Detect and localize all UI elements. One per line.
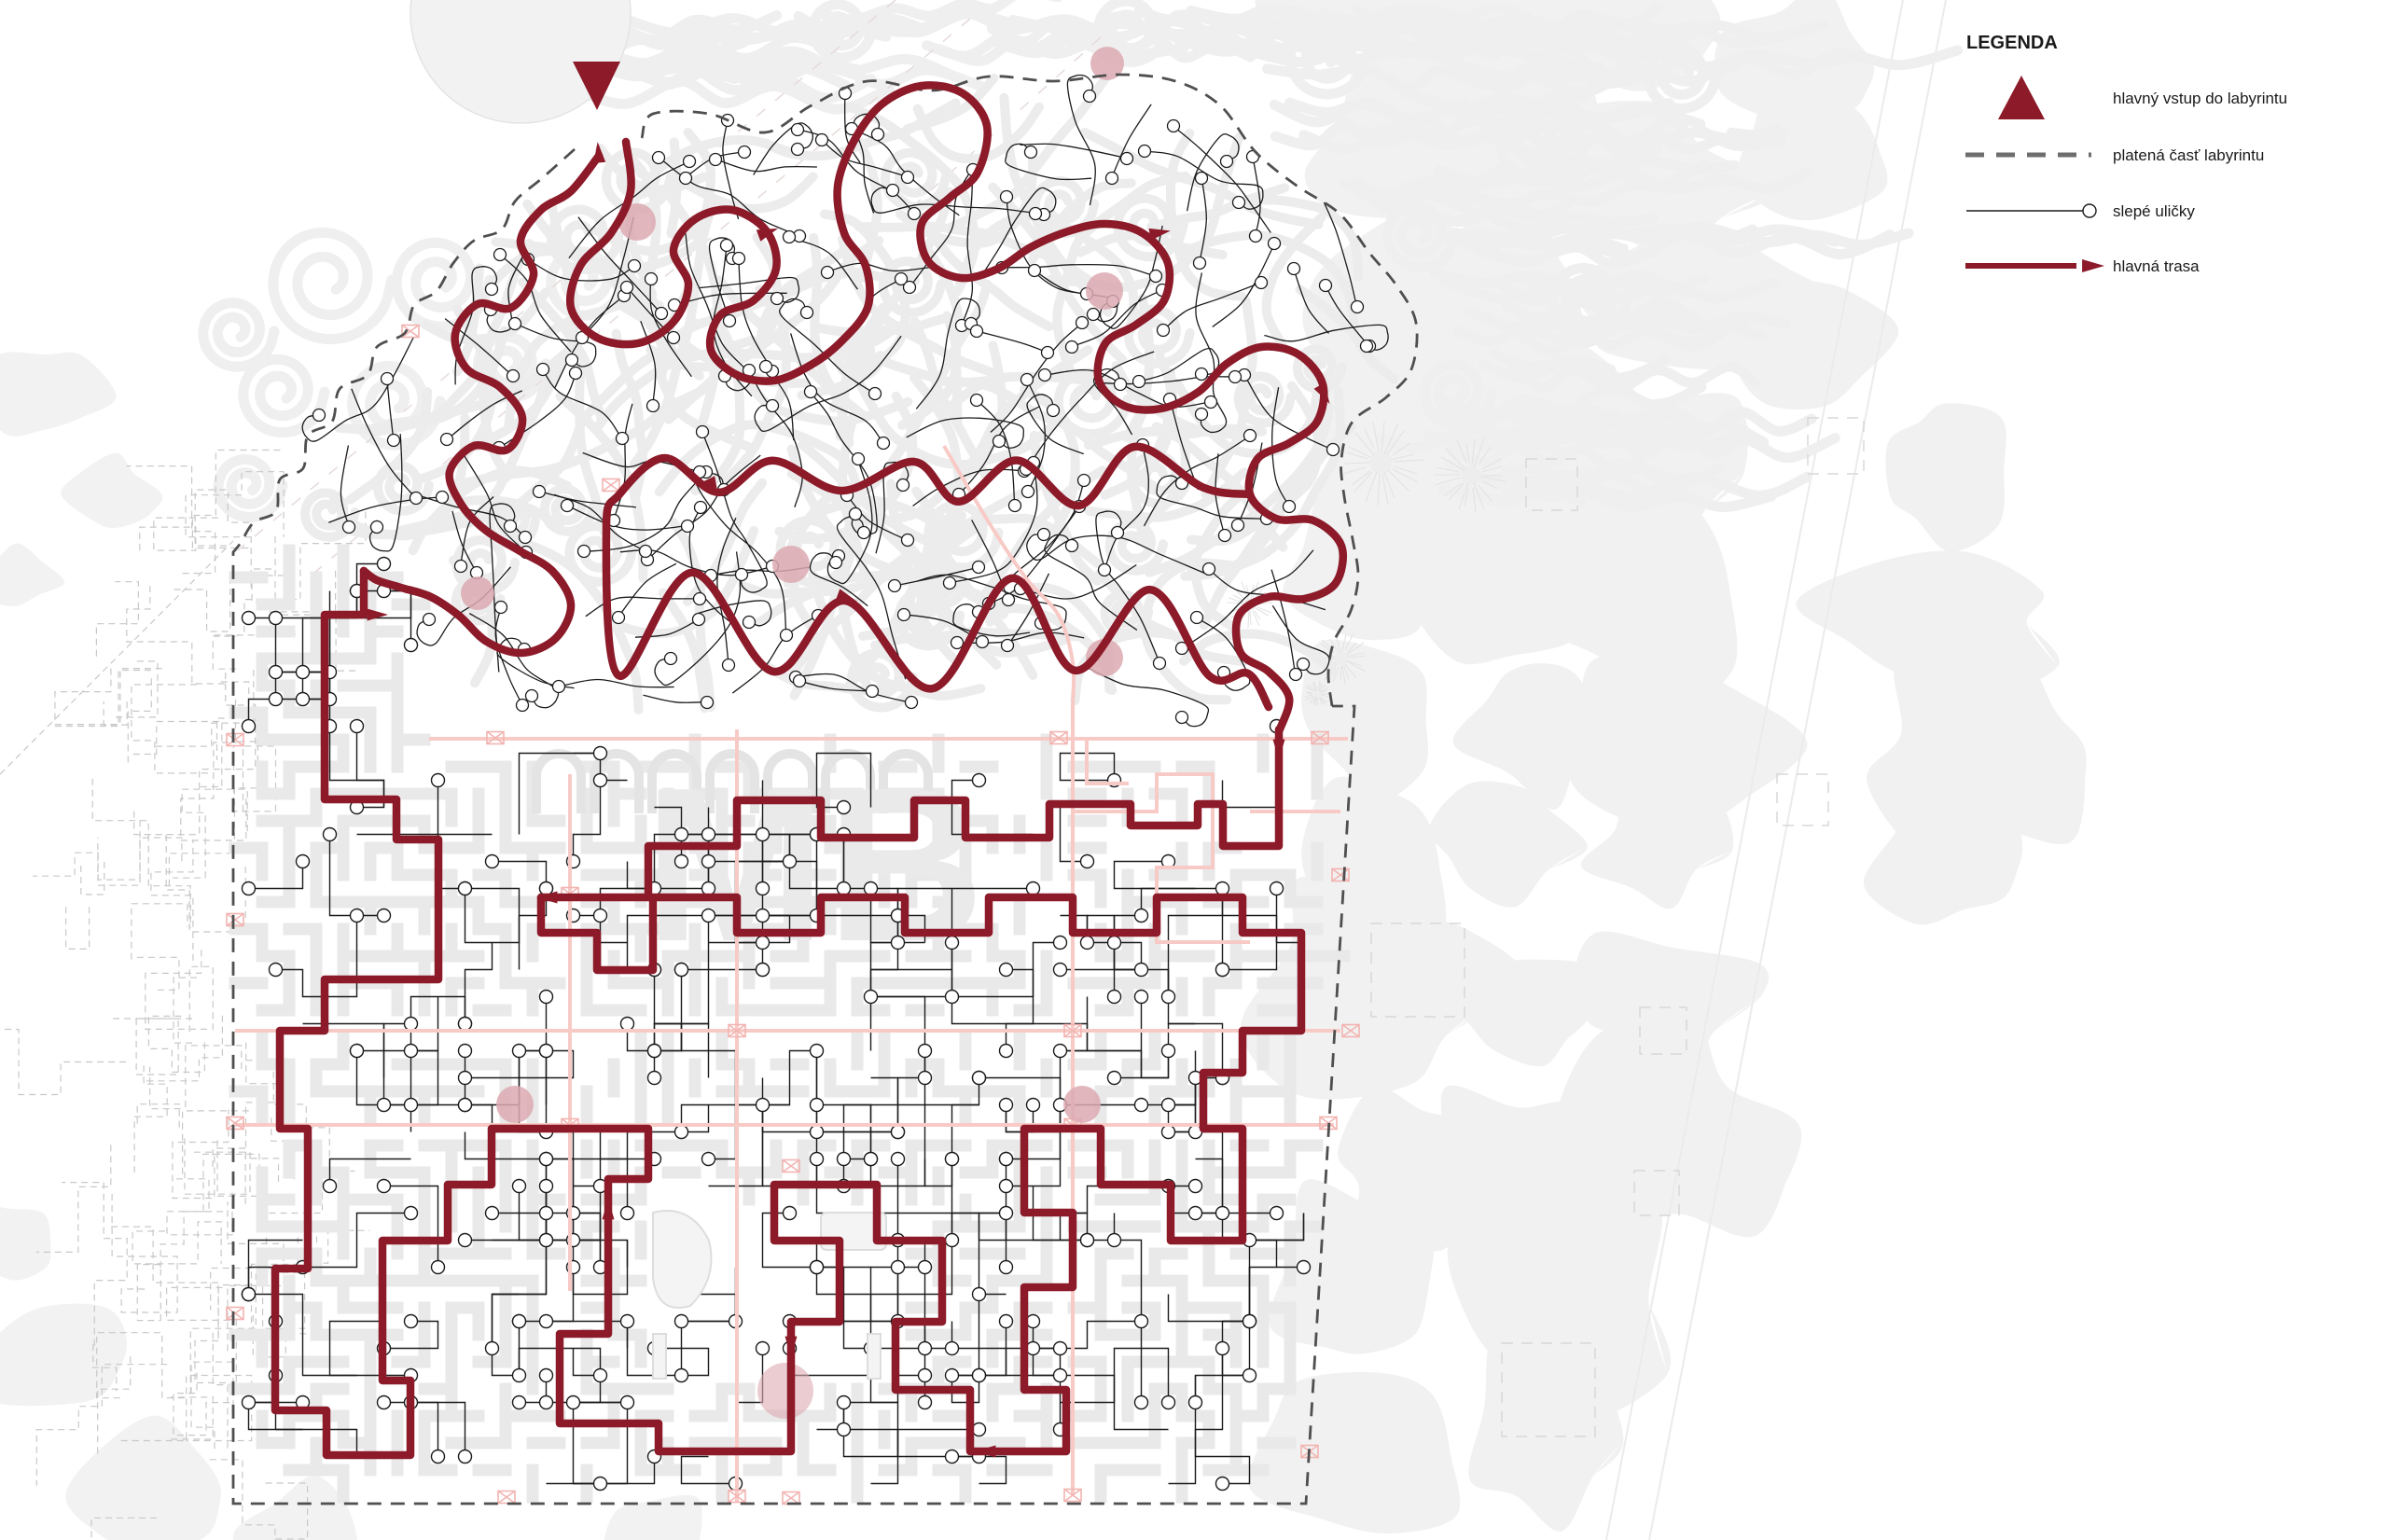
svg-text:platená časť labyrintu: platená časť labyrintu [2113, 146, 2264, 164]
svg-text:slepé uličky: slepé uličky [2113, 202, 2195, 220]
svg-text:MB: MB [644, 742, 984, 987]
svg-text:hlavná trasa: hlavná trasa [2113, 257, 2200, 275]
svg-text:LEGENDA: LEGENDA [1966, 33, 2058, 53]
svg-text:hlavný vstup do labyrintu: hlavný vstup do labyrintu [2113, 90, 2287, 107]
